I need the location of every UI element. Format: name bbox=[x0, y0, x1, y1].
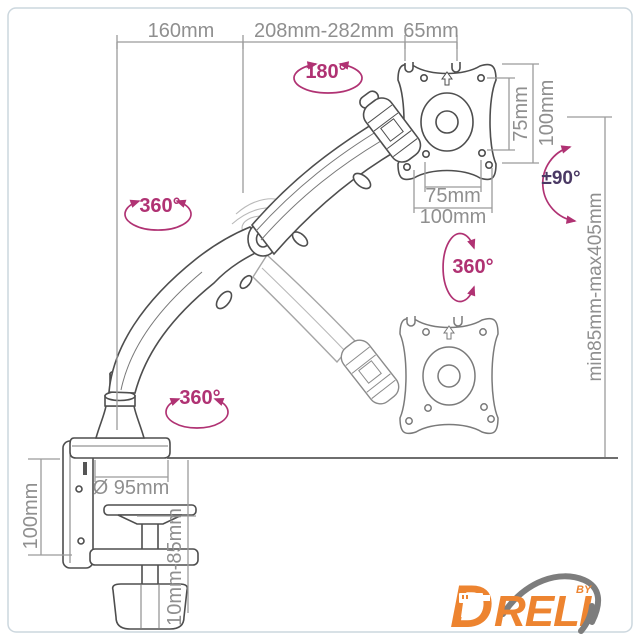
dim-vesa-75mm-horizontal: 75mm bbox=[425, 185, 481, 207]
logo-by-text: BY bbox=[576, 584, 593, 596]
dim-vesa-100mm-horizontal: 100mm bbox=[420, 206, 487, 228]
dim-160mm: 160mm bbox=[148, 20, 215, 42]
dim-clamp-height-100mm: 100mm bbox=[20, 483, 42, 550]
dreli-logo: D RELI BY bbox=[450, 573, 598, 640]
angle-180-label: 180° bbox=[305, 61, 346, 83]
angle-360-elbow-label: 360° bbox=[139, 195, 180, 217]
bottom-vesa-plate bbox=[400, 316, 498, 433]
dim-height-range: min85mm-max405mm bbox=[585, 193, 606, 382]
ghost-head-joint bbox=[336, 335, 403, 408]
diagram-canvas: 160mm 208mm-282mm 65mm 75mm 100mm 75mm 1… bbox=[0, 0, 640, 640]
dim-vesa-100mm-vertical: 100mm bbox=[536, 80, 558, 147]
dim-vesa-75mm-vertical: 75mm bbox=[510, 86, 532, 142]
dim-208-282mm: 208mm-282mm bbox=[254, 20, 394, 42]
angle-360-monitor-label: 360° bbox=[452, 256, 493, 278]
angle-90-label: ±90° bbox=[541, 168, 580, 189]
dim-base-diameter-95mm: Ø 95mm bbox=[93, 477, 170, 499]
dim-65mm: 65mm bbox=[403, 20, 459, 42]
angle-360-base-label: 360° bbox=[179, 387, 220, 409]
monitor-arm-diagram: 160mm 208mm-282mm 65mm 75mm 100mm 75mm 1… bbox=[0, 0, 640, 640]
dim-desk-thickness: 10mm-85mm bbox=[164, 508, 186, 626]
lower-arm-segment bbox=[109, 227, 263, 393]
